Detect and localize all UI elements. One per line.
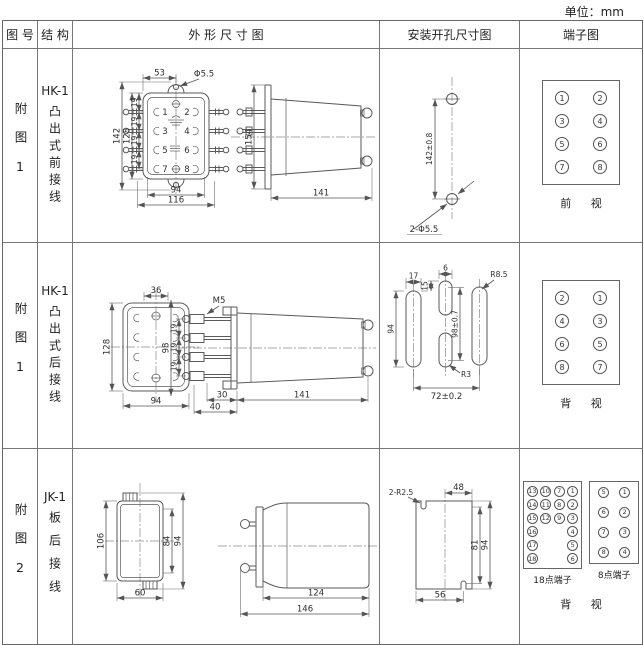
dimension-label: 17 [409, 272, 419, 281]
screw-spec-label: M5 [213, 296, 226, 306]
header-figure: 图 号 [3, 21, 38, 49]
terminal-circle: 1 [619, 487, 630, 498]
terminal-number: 2 [184, 108, 189, 118]
terminal-circle: 5 [593, 337, 607, 351]
dimension-label: 56 [435, 591, 446, 601]
terminal-circle: 3 [555, 114, 569, 128]
dimension-label: 94 [174, 536, 184, 547]
dimension-label: 142±0.8 [425, 133, 434, 166]
terminal-circle: 8 [555, 360, 569, 374]
dimension-label: 124 [308, 589, 324, 599]
mounting-cell-row3: 2-R2.5 48 81 94 56 [380, 449, 520, 644]
outline-cell-row3: 106 60 84 94 [73, 449, 380, 644]
dimension-label: 36 [151, 286, 162, 296]
terminal-circle: 16 [527, 526, 538, 537]
figure-label-row1: 附图1 [11, 102, 30, 190]
view-caption: 背 视 [552, 596, 610, 612]
terminal-number: 4 [184, 127, 189, 137]
dimension-label: 84 [163, 536, 173, 547]
figure-label-row3: 附图2 [11, 503, 30, 591]
terminal-circle: 2 [593, 91, 607, 105]
terminal-number: 5 [162, 146, 167, 156]
spec-table: 图 号 结 构 外 形 尺 寸 图 安装开孔尺寸图 端子图 附图1 HK-1 凸… [2, 20, 643, 645]
header-mounting: 安装开孔尺寸图 [380, 21, 520, 49]
terminal-circle: 3 [567, 513, 578, 524]
dimension-label: 30 [217, 391, 228, 401]
terminal-cell-row3: 13 14 15 16 17 18 10 11 12 [520, 449, 642, 644]
terminal-circle: 8 [554, 499, 565, 510]
hole-spec-label: 2-Φ5.5 [410, 225, 439, 235]
header-terminal: 端子图 [520, 21, 642, 49]
radius-label: R3 [461, 370, 471, 379]
jk1-front-view: 106 60 84 94 [97, 483, 186, 601]
terminal-circle: 4 [619, 547, 630, 558]
model-label-row3: JK-1 [44, 490, 66, 504]
terminal-circle: 11 [540, 499, 551, 510]
mounting-drawing-row2: 17 94 6 15 98±0.7 R8.5 R3 [380, 243, 519, 449]
terminal-circle: 4 [593, 114, 607, 128]
jk1-side-view: 124 146 [218, 503, 378, 617]
dimension-label: 81 [471, 540, 481, 551]
terminal-circle: 5 [598, 487, 609, 498]
dimension-label: Φ5.5 [194, 70, 214, 80]
dimension-label: 19 [130, 117, 139, 127]
dimension-label: 40 [210, 403, 221, 413]
dimension-label: 19 [170, 324, 179, 334]
terminal-circle: 1 [555, 91, 569, 105]
dimension-label: 19 [170, 343, 179, 353]
view-caption: 背 视 [552, 395, 610, 411]
terminal-circle: 7 [555, 160, 569, 174]
dimension-label: 94 [481, 540, 491, 551]
terminal-box-front-view: 1 2 3 4 5 6 7 8 [542, 80, 620, 185]
outline-cell-row1: 1 2 3 4 5 6 7 8 53 Φ5.5 142 [73, 49, 380, 243]
terminal-circle: 17 [527, 540, 538, 551]
terminal-circle: 6 [593, 137, 607, 151]
terminal-circle: 6 [598, 507, 609, 518]
terminal-circle: 1 [567, 486, 578, 497]
terminal-number: 8 [184, 165, 189, 175]
terminal-circle: 7 [598, 527, 609, 538]
terminal-circle: 8 [598, 547, 609, 558]
dimension-label: 19 [170, 362, 179, 372]
dimension-label: 98±0.7 [451, 310, 460, 338]
dimension-label: 72±0.2 [431, 392, 462, 402]
hk1-rear-view: 36 128 94 [103, 286, 202, 409]
dimension-label: 19 [130, 98, 139, 108]
terminal-box-rear-view: 2 1 4 3 6 5 8 7 [542, 280, 620, 385]
structure-type-row3: 板后接线 [47, 511, 64, 603]
terminal-box-label: 18点端子 [533, 573, 571, 586]
hk1-rear-side-view: M5 98 19 19 19 30 4 [162, 296, 377, 414]
terminal-circle: 18 [527, 553, 538, 564]
dimension-label: 116 [168, 196, 184, 206]
dimension-label: 94 [387, 324, 396, 334]
dimension-label: 94 [171, 186, 182, 196]
model-label-row1: HK-1 [41, 84, 69, 98]
terminal-circle: 3 [619, 527, 630, 538]
terminal-number: 7 [162, 165, 167, 175]
terminal-number: 1 [162, 108, 167, 118]
terminal-box-label: 8点端子 [598, 568, 631, 581]
terminal-circle: 4 [567, 526, 578, 537]
dimension-label: 94 [151, 397, 162, 407]
hk1-side-view: 154 141 [231, 85, 375, 201]
terminal-circle: 12 [540, 513, 551, 524]
structure-cell-row1: HK-1 凸出式前接线 [38, 49, 73, 243]
hk1-front-view: 1 2 3 4 5 6 7 8 53 Φ5.5 142 [113, 69, 229, 209]
header-outline: 外 形 尺 寸 图 [73, 21, 380, 49]
structure-cell-row2: HK-1 凸出式后接线 [38, 243, 73, 449]
dimension-label: 15 [421, 281, 430, 291]
model-label-row2: HK-1 [41, 284, 69, 298]
outline-drawing-front-wiring: 1 2 3 4 5 6 7 8 53 Φ5.5 142 [73, 49, 380, 243]
dimension-label: 146 [297, 605, 313, 615]
radius-label: 2-R2.5 [389, 488, 414, 497]
dimension-label: 53 [154, 69, 165, 79]
unit-label: 单位：mm [565, 3, 624, 20]
mounting-cell-row1: 142±0.8 2-Φ5.5 [380, 49, 520, 243]
terminal-circle: 2 [619, 507, 630, 518]
dimension-label: 19 [130, 136, 139, 146]
outline-cell-row2: 36 128 94 [73, 243, 380, 449]
terminal-cell-row2: 2 1 4 3 6 5 8 7 背 视 [520, 243, 642, 449]
dimension-label: 19 [130, 155, 139, 165]
terminal-circle: 6 [555, 337, 569, 351]
dimension-label: 128 [103, 339, 113, 355]
figure-cell-row1: 附图1 [3, 49, 38, 243]
dimension-label: 154 [245, 129, 255, 145]
structure-type-row2: 凸出式后接线 [47, 305, 64, 407]
terminal-number: 6 [184, 146, 189, 156]
dimension-label: 141 [313, 189, 329, 199]
mounting-cell-row2: 17 94 6 15 98±0.7 R8.5 R3 [380, 243, 520, 449]
figure-cell-row2: 附图1 [3, 243, 38, 449]
terminal-circle: 13 [527, 486, 538, 497]
outline-drawing-jk1: 106 60 84 94 [73, 449, 380, 644]
dimension-label: 48 [453, 483, 464, 493]
terminal-circle: 3 [593, 314, 607, 328]
structure-type-row1: 凸出式前接线 [47, 105, 64, 207]
structure-cell-row3: JK-1 板后接线 [38, 449, 73, 644]
terminal-circle: 5 [567, 540, 578, 551]
terminal-circle: 10 [540, 486, 551, 497]
terminal-circle: 9 [554, 513, 565, 524]
terminal-circle: 4 [555, 314, 569, 328]
terminal-circle: 15 [527, 513, 538, 524]
figure-cell-row3: 附图2 [3, 449, 38, 644]
terminal-number: 3 [162, 127, 167, 137]
dimension-label: 142 [113, 128, 123, 144]
figure-label-row2: 附图1 [11, 302, 30, 390]
outline-drawing-rear-wiring: 36 128 94 [73, 243, 380, 449]
view-caption: 前 视 [552, 195, 610, 211]
dimension-label: 6 [443, 264, 448, 273]
dimension-label: 60 [135, 589, 146, 599]
radius-label: R8.5 [490, 270, 507, 279]
terminal-circle: 2 [555, 291, 569, 305]
mounting-drawing-row1: 142±0.8 2-Φ5.5 [380, 49, 519, 243]
terminal-circle: 5 [555, 137, 569, 151]
page: 单位：mm 图 号 结 构 外 形 尺 寸 图 安装开孔尺寸图 端子图 附图1 … [0, 0, 644, 645]
terminal-circle: 1 [593, 291, 607, 305]
terminal-circle: 14 [527, 499, 538, 510]
header-structure: 结 构 [38, 21, 73, 49]
dimension-label: 141 [294, 391, 310, 401]
dimension-label: 106 [97, 533, 107, 549]
terminal-circle: 7 [554, 486, 565, 497]
terminal-circle: 7 [593, 360, 607, 374]
terminal-box-8: 5 6 7 8 1 2 3 4 [589, 481, 639, 564]
mounting-drawing-row3: 2-R2.5 48 81 94 56 [380, 449, 519, 644]
terminal-cell-row1: 1 2 3 4 5 6 7 8 前 视 [520, 49, 642, 243]
terminal-circle: 2 [567, 499, 578, 510]
contact-bars [170, 146, 180, 151]
terminal-box-18: 13 14 15 16 17 18 10 11 12 [523, 481, 583, 570]
terminal-circle: 6 [567, 553, 578, 564]
terminal-circle: 8 [593, 160, 607, 174]
